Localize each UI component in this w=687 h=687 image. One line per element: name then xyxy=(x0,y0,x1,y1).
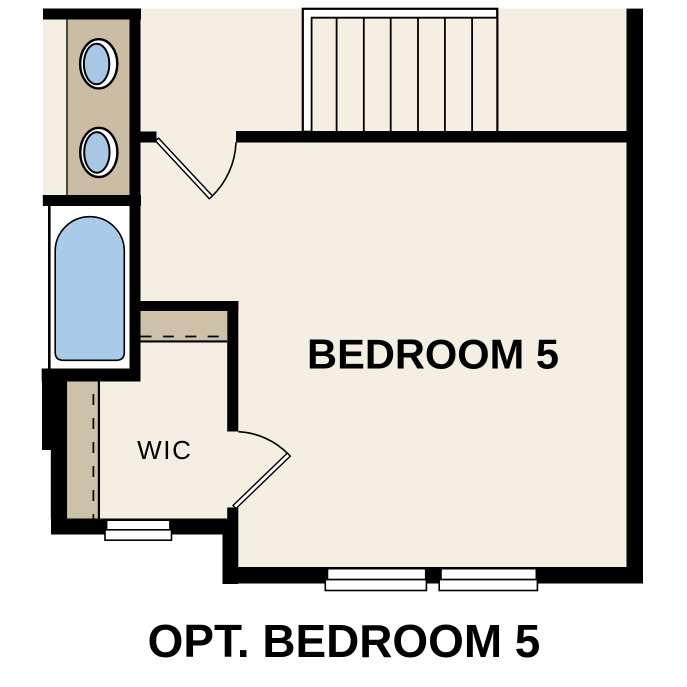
svg-text:OPT. BEDROOM 5: OPT. BEDROOM 5 xyxy=(148,615,541,667)
svg-text:BEDROOM 5: BEDROOM 5 xyxy=(307,330,559,377)
svg-text:WIC: WIC xyxy=(137,435,192,465)
